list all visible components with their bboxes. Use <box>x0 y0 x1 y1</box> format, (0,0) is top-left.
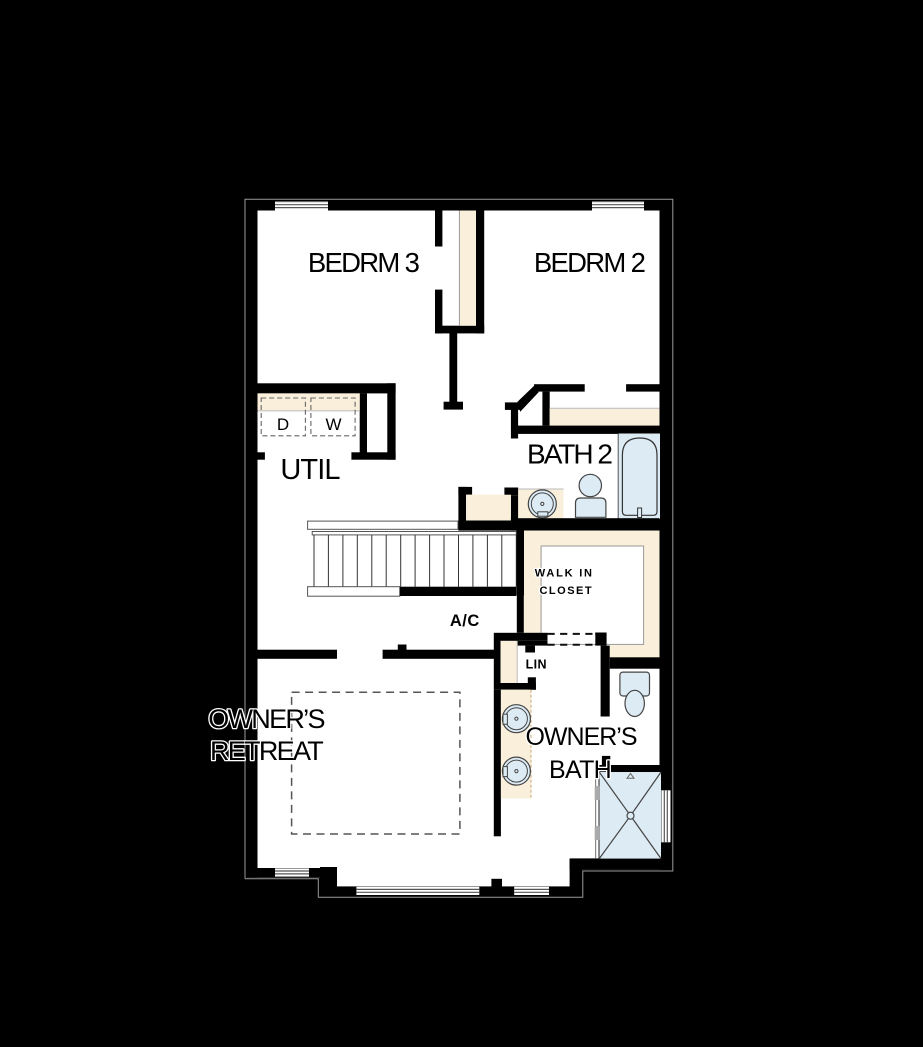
svg-text:OWNER’S: OWNER’S <box>208 704 324 734</box>
svg-text:LIN: LIN <box>526 658 547 672</box>
svg-text:A/C: A/C <box>450 612 480 630</box>
svg-text:RETREAT: RETREAT <box>210 736 323 766</box>
svg-text:W: W <box>325 415 341 434</box>
svg-text:OWNER’S: OWNER’S <box>525 723 636 751</box>
svg-text:D: D <box>277 415 289 434</box>
svg-text:UTIL: UTIL <box>280 454 340 486</box>
svg-text:BEDRM 2: BEDRM 2 <box>534 247 645 278</box>
svg-text:WALK IN: WALK IN <box>535 568 594 580</box>
svg-text:BATH: BATH <box>549 756 611 784</box>
svg-text:BATH 2: BATH 2 <box>527 439 612 470</box>
svg-text:BEDRM 3: BEDRM 3 <box>308 247 420 278</box>
svg-text:CLOSET: CLOSET <box>539 585 593 597</box>
